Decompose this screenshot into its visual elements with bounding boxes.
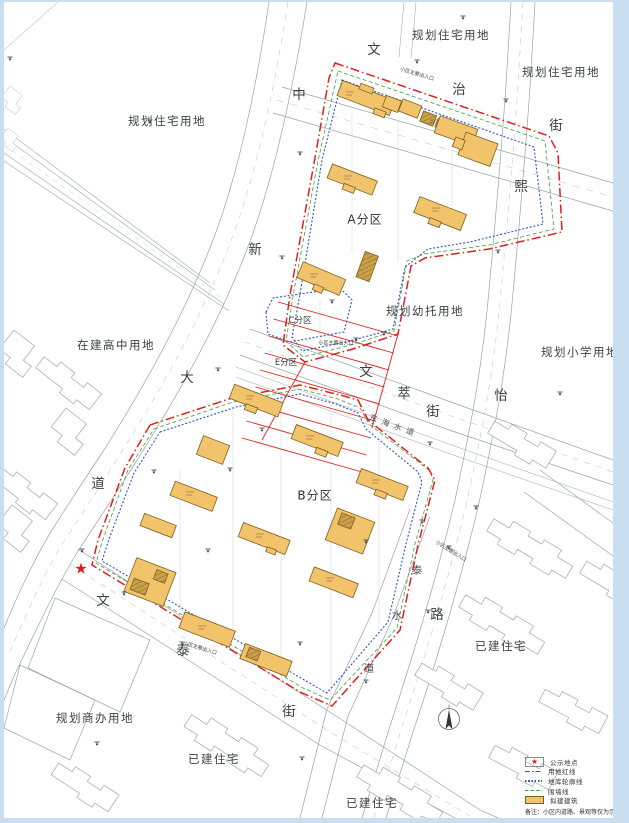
legend-item-building: 拟建建筑 [525,795,613,805]
legend-item-notice: ★ 公示地点 [525,757,613,767]
dimension-lines [180,112,452,700]
legend-item-redline: 用地红线 [525,767,613,777]
legend: ★ 公示地点 用地红线 地库轮廓线 围墙线 拟建建筑 备注：小区内道路、景观等仅… [525,757,613,816]
compass-north-icon [439,705,460,730]
site-plan-page: 规划住宅用地 规划住宅用地 规划住宅用地 在建高中用地 规划幼托用地 规划小学用… [0,0,629,823]
building-swatch-icon [525,796,544,805]
legend-star-icon: ★ [531,758,538,766]
legend-item-fence: 围墙线 [525,786,613,796]
redline-swatch-icon [525,767,542,775]
legend-note: 备注：小区内道路、景观等仅为示意方案。 [525,807,613,816]
fence-line-swatch-icon [525,787,542,795]
roads [4,2,613,818]
map-canvas [4,2,613,818]
legend-item-garage: 地库轮廓线 [525,776,613,786]
garage-line-swatch-icon [525,777,542,785]
map-sheet: 规划住宅用地 规划住宅用地 规划住宅用地 在建高中用地 规划幼托用地 规划小学用… [4,2,613,818]
